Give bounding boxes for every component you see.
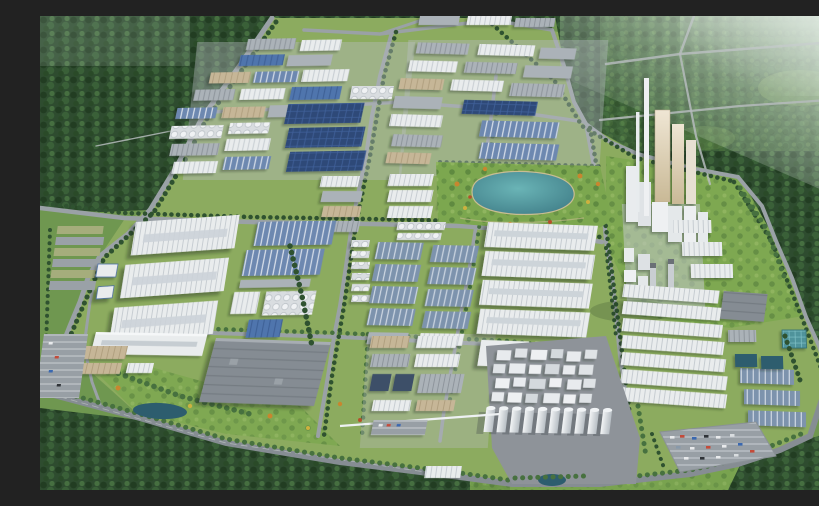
lake bbox=[472, 171, 574, 214]
gray-ridged-hall bbox=[720, 291, 768, 322]
haze-corner bbox=[680, 16, 819, 96]
small-hall-bottom bbox=[424, 466, 462, 478]
chimney bbox=[644, 78, 649, 216]
aerial-scene bbox=[40, 16, 819, 490]
pool-grid bbox=[782, 330, 807, 348]
haze-northwest bbox=[40, 16, 190, 66]
large-gray-hall bbox=[199, 338, 331, 406]
clarifier-pool bbox=[735, 354, 757, 367]
gatehouse bbox=[96, 286, 114, 299]
silo-row-top-center bbox=[350, 86, 394, 99]
clarifier-pool bbox=[761, 356, 783, 369]
preheater-tower bbox=[655, 110, 670, 202]
industrial-park-rendering: Aerial 3D rendering of an industrial par… bbox=[40, 16, 819, 490]
chimney bbox=[636, 112, 640, 212]
preheater-tower bbox=[672, 124, 684, 204]
lake-park bbox=[436, 162, 612, 230]
gatehouse-west bbox=[96, 264, 118, 277]
